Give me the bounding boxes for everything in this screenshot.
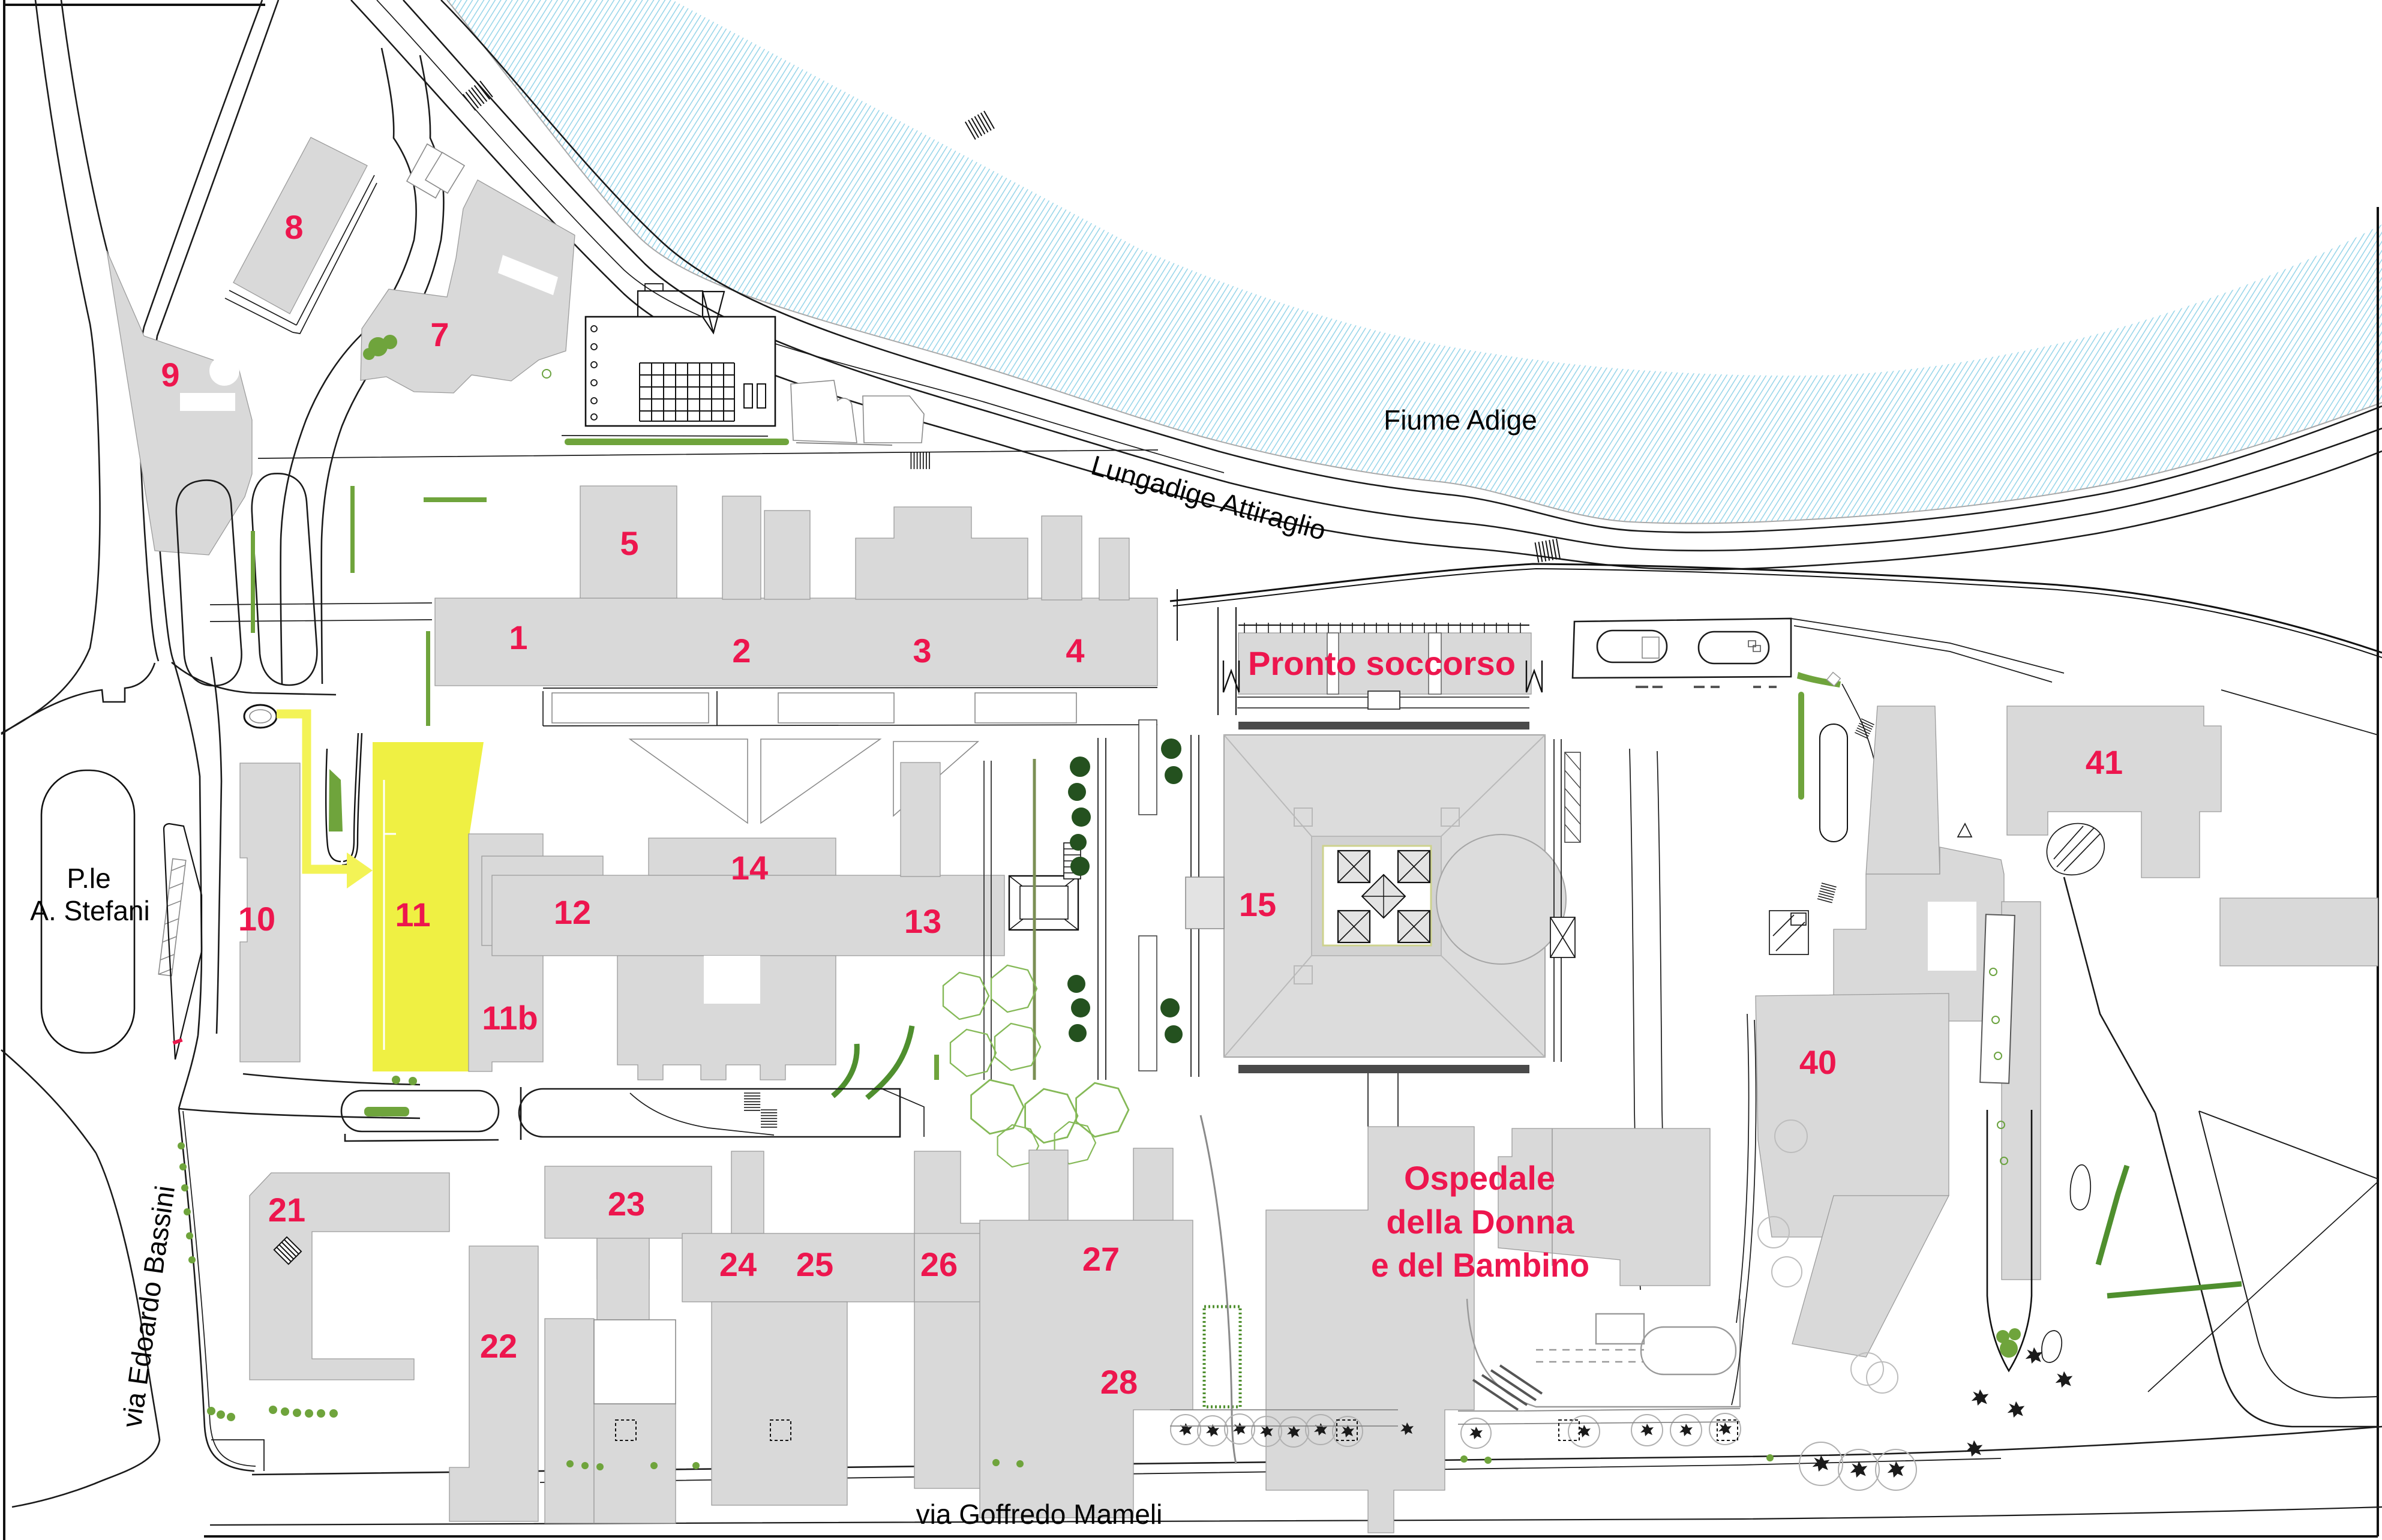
svg-text:5: 5 — [620, 524, 638, 562]
svg-text:14: 14 — [731, 849, 768, 887]
svg-text:3: 3 — [913, 632, 931, 670]
svg-text:11b: 11b — [482, 999, 538, 1037]
svg-text:24: 24 — [719, 1245, 757, 1283]
svg-text:22: 22 — [480, 1327, 517, 1365]
svg-text:e del Bambino: e del Bambino — [1371, 1246, 1589, 1284]
svg-text:2: 2 — [732, 632, 751, 670]
svg-text:23: 23 — [608, 1185, 645, 1223]
svg-text:40: 40 — [1799, 1043, 1837, 1081]
svg-text:A. Stefani: A. Stefani — [30, 895, 149, 926]
svg-text:41: 41 — [2086, 743, 2123, 781]
svg-text:26: 26 — [920, 1245, 958, 1283]
svg-text:Pronto soccorso: Pronto soccorso — [1248, 644, 1516, 682]
svg-text:28: 28 — [1100, 1363, 1138, 1401]
svg-text:13: 13 — [904, 902, 941, 940]
svg-text:P.le: P.le — [67, 863, 110, 894]
svg-text:della Donna: della Donna — [1387, 1203, 1575, 1241]
svg-text:21: 21 — [268, 1191, 305, 1229]
svg-text:11: 11 — [395, 896, 430, 933]
svg-text:10: 10 — [238, 900, 275, 938]
svg-text:via Goffredo Mameli: via Goffredo Mameli — [916, 1499, 1163, 1530]
svg-text:1: 1 — [509, 619, 527, 656]
svg-text:Fiume Adige: Fiume Adige — [1384, 404, 1537, 436]
svg-text:4: 4 — [1066, 632, 1084, 670]
svg-text:25: 25 — [796, 1245, 833, 1283]
svg-text:8: 8 — [284, 208, 303, 246]
svg-text:Ospedale: Ospedale — [1404, 1159, 1555, 1197]
svg-text:9: 9 — [161, 356, 179, 394]
svg-text:15: 15 — [1239, 885, 1276, 923]
svg-text:7: 7 — [430, 316, 449, 353]
svg-text:27: 27 — [1082, 1240, 1120, 1278]
svg-text:12: 12 — [554, 893, 591, 931]
